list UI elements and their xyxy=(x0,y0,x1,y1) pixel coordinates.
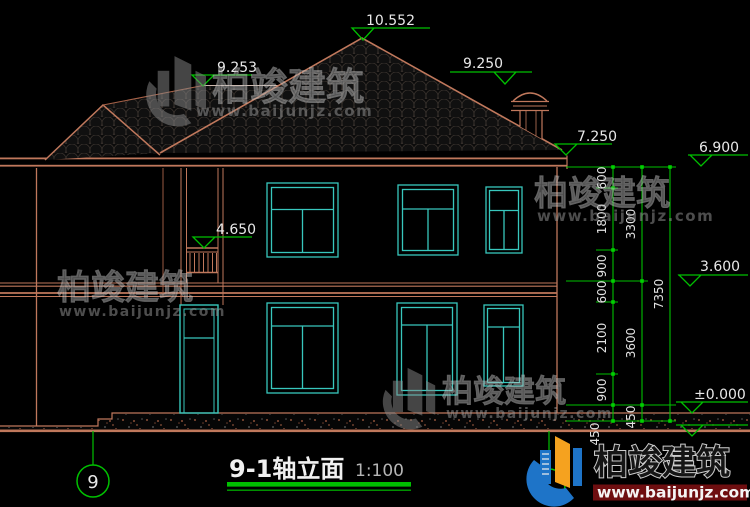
dim-600-b: 600 xyxy=(595,281,609,304)
watermark-url: www.baijunjz.com xyxy=(446,406,613,422)
watermark-url: www.baijunjz.com xyxy=(537,207,714,225)
cad-elevation-drawing: 600 1800 900 600 2100 900 450 3300 3600 … xyxy=(0,0,750,507)
drawing-scale: 1:100 xyxy=(355,461,404,481)
dim-900-b: 900 xyxy=(595,379,609,402)
elevation-main-ridge: 10.552 xyxy=(366,13,415,29)
dim-7350: 7350 xyxy=(652,279,666,310)
elevation-eave-top: 7.250 xyxy=(577,129,617,145)
drawing-title: 9-1轴立面 xyxy=(229,455,344,483)
brand-url: www.baijunjz.com xyxy=(597,484,750,502)
drawing-title-block: 9-1轴立面 1:100 xyxy=(227,455,411,491)
dim-3600: 3600 xyxy=(624,328,638,359)
dim-2100: 2100 xyxy=(595,323,609,354)
elevation-ground-floor: ±0.000 xyxy=(694,387,746,403)
logo-building-right xyxy=(573,448,582,486)
watermark-brand: 柏竣建筑 xyxy=(442,374,566,410)
logo-building-center xyxy=(555,436,570,488)
title-underline xyxy=(227,482,411,487)
brand-logo-colored: 柏竣建筑 www.baijunjz.com xyxy=(526,436,750,507)
logo-building-left xyxy=(540,450,551,484)
elevation-drawing-canvas: 600 1800 900 600 2100 900 450 3300 3600 … xyxy=(0,0,750,507)
elevation-chimney: 9.250 xyxy=(463,56,503,72)
dim-900-a: 900 xyxy=(595,255,609,278)
watermark-url: www.baijunjz.com xyxy=(196,102,373,120)
elevation-eave-bottom: 6.900 xyxy=(699,140,739,156)
elevation-second-floor: 3.600 xyxy=(700,259,740,275)
dim-450-b: 450 xyxy=(624,406,638,429)
watermark-brand: 柏竣建筑 xyxy=(57,268,193,308)
watermark-top: 柏竣建筑 www.baijunjz.com xyxy=(146,56,373,126)
brand-name: 柏竣建筑 xyxy=(594,443,730,483)
elevation-balcony: 4.650 xyxy=(216,222,256,238)
axis-label-9: 9 xyxy=(87,472,98,493)
title-underline-thin xyxy=(227,490,411,491)
watermark-url: www.baijunjz.com xyxy=(59,304,226,320)
